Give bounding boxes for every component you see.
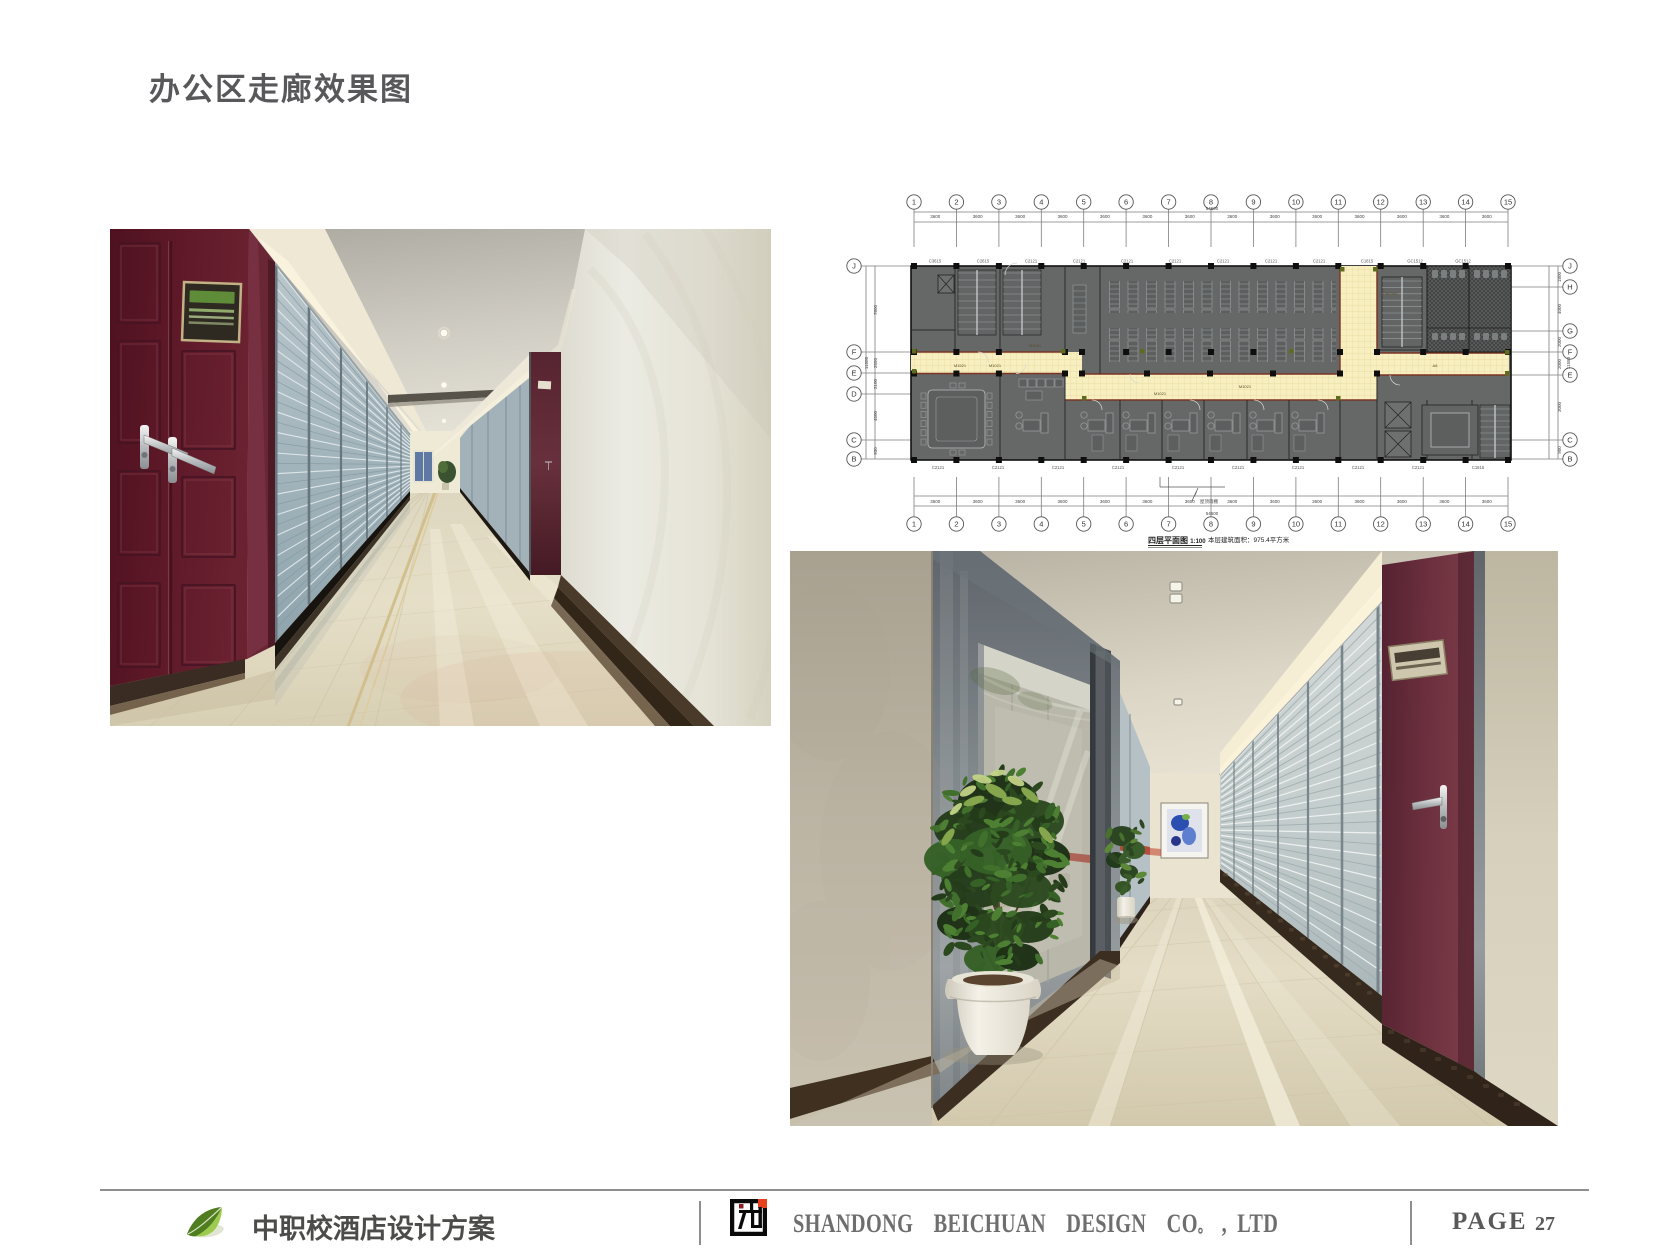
svg-text:14: 14 <box>1461 198 1469 207</box>
svg-text:C: C <box>851 436 857 445</box>
svg-text:3600: 3600 <box>1227 499 1238 504</box>
svg-text:15: 15 <box>1504 520 1512 529</box>
svg-text:900: 900 <box>1557 446 1562 454</box>
svg-text:2000: 2000 <box>1557 358 1562 369</box>
svg-text:B: B <box>851 455 856 464</box>
svg-text:M1021: M1021 <box>989 363 1002 368</box>
svg-text:C2121: C2121 <box>932 465 945 470</box>
svg-text:1: 1 <box>912 198 916 207</box>
svg-text:C2121: C2121 <box>1217 259 1230 264</box>
svg-text:1: 1 <box>912 520 916 529</box>
svg-text:C2121: C2121 <box>1169 259 1182 264</box>
svg-text:C2121: C2121 <box>1172 465 1185 470</box>
svg-text:4: 4 <box>1039 520 1043 529</box>
svg-text:11: 11 <box>1334 520 1342 529</box>
svg-text:3600: 3600 <box>1439 499 1450 504</box>
svg-text:11580: 11580 <box>1566 356 1571 369</box>
svg-text:3600: 3600 <box>1397 499 1408 504</box>
svg-text:15: 15 <box>1504 198 1512 207</box>
svg-text:9: 9 <box>1251 198 1255 207</box>
svg-text:6: 6 <box>1124 520 1128 529</box>
svg-text:J: J <box>1568 262 1572 271</box>
svg-text:11: 11 <box>1334 198 1342 207</box>
svg-text:13: 13 <box>1419 520 1427 529</box>
svg-text:1800: 1800 <box>1557 271 1562 282</box>
svg-text:11580: 11580 <box>864 356 869 369</box>
svg-text:E: E <box>851 369 856 378</box>
svg-text:3600: 3600 <box>1100 214 1111 219</box>
svg-text:3600: 3600 <box>1354 214 1365 219</box>
svg-text:12: 12 <box>1377 198 1385 207</box>
svg-text:3600: 3600 <box>1185 499 1196 504</box>
svg-text:M1021: M1021 <box>1029 343 1042 348</box>
svg-text:3600: 3600 <box>1354 499 1365 504</box>
svg-text:C2615: C2615 <box>977 259 990 264</box>
svg-text:3600: 3600 <box>973 214 984 219</box>
svg-text:3600: 3600 <box>1185 214 1196 219</box>
svg-text:C2121: C2121 <box>1265 259 1278 264</box>
svg-text:GC1512: GC1512 <box>1407 259 1423 264</box>
svg-text:7: 7 <box>1167 198 1171 207</box>
svg-text:2: 2 <box>954 198 958 207</box>
svg-text:C2121: C2121 <box>1352 465 1365 470</box>
svg-text:3600: 3600 <box>1057 214 1068 219</box>
svg-text:3600: 3600 <box>1482 214 1493 219</box>
svg-text:3600: 3600 <box>1227 214 1238 219</box>
svg-text:M1521: M1521 <box>954 363 967 368</box>
svg-text:3600: 3600 <box>1057 499 1068 504</box>
svg-text:54600: 54600 <box>1206 511 1219 516</box>
svg-text:M1021: M1021 <box>1154 391 1167 396</box>
svg-text:8: 8 <box>1209 520 1213 529</box>
svg-text:A6: A6 <box>1433 363 1439 368</box>
svg-text:2550: 2550 <box>873 357 878 368</box>
svg-text:TM2040: TM2040 <box>1383 291 1398 296</box>
svg-text:C: C <box>1567 436 1573 445</box>
svg-text:B: B <box>1567 455 1572 464</box>
svg-text:四层平面图 1:100: 四层平面图 1:100 <box>1148 536 1206 545</box>
svg-text:G: G <box>1567 327 1573 336</box>
svg-text:12: 12 <box>1377 520 1385 529</box>
svg-text:C2121: C2121 <box>1412 465 1425 470</box>
svg-text:C2121: C2121 <box>1073 259 1086 264</box>
svg-text:M1021: M1021 <box>1239 384 1252 389</box>
svg-text:3600: 3600 <box>930 499 941 504</box>
svg-text:7: 7 <box>1167 520 1171 529</box>
svg-text:J: J <box>852 262 856 271</box>
svg-text:E: E <box>1567 371 1572 380</box>
svg-text:14: 14 <box>1461 520 1469 529</box>
svg-text:C3615: C3615 <box>929 259 942 264</box>
svg-text:3600: 3600 <box>1142 214 1153 219</box>
svg-text:3600: 3600 <box>1270 499 1281 504</box>
svg-text:屋顶雨棚: 屋顶雨棚 <box>1200 498 1218 505</box>
svg-text:4500: 4500 <box>873 410 878 421</box>
svg-text:10: 10 <box>1292 198 1300 207</box>
svg-text:C1815: C1815 <box>1472 465 1485 470</box>
svg-text:3: 3 <box>997 198 1001 207</box>
svg-text:3600: 3600 <box>1312 499 1323 504</box>
svg-text:C2121: C2121 <box>1025 259 1038 264</box>
svg-text:F: F <box>1568 348 1573 357</box>
svg-text:7800: 7800 <box>873 304 878 315</box>
svg-text:C2121: C2121 <box>1052 465 1065 470</box>
svg-text:GC1512: GC1512 <box>1455 259 1471 264</box>
svg-text:2000: 2000 <box>1557 336 1562 347</box>
svg-text:13: 13 <box>1419 198 1427 207</box>
svg-text:4: 4 <box>1039 198 1043 207</box>
svg-text:C2121: C2121 <box>1121 259 1134 264</box>
svg-text:D: D <box>851 390 857 399</box>
svg-text:9: 9 <box>1251 520 1255 529</box>
svg-text:5: 5 <box>1082 198 1086 207</box>
svg-text:5: 5 <box>1082 520 1086 529</box>
svg-text:C1815: C1815 <box>1361 259 1374 264</box>
svg-text:10: 10 <box>1292 520 1300 529</box>
svg-text:C2121: C2121 <box>992 465 1005 470</box>
svg-text:3600: 3600 <box>1482 499 1493 504</box>
svg-text:C2121: C2121 <box>1313 259 1326 264</box>
svg-text:C2121: C2121 <box>1292 465 1305 470</box>
svg-text:本层建筑面积：975.4平方米: 本层建筑面积：975.4平方米 <box>1208 535 1290 544</box>
svg-text:930: 930 <box>873 447 878 455</box>
svg-text:3000: 3000 <box>1557 401 1562 412</box>
svg-text:3600: 3600 <box>1015 214 1026 219</box>
svg-text:3600: 3600 <box>1015 499 1026 504</box>
svg-text:C2121: C2121 <box>1232 465 1245 470</box>
svg-text:54600: 54600 <box>1206 206 1219 211</box>
svg-text:3600: 3600 <box>1270 214 1281 219</box>
svg-text:3600: 3600 <box>1439 214 1450 219</box>
svg-text:H: H <box>1567 283 1572 292</box>
svg-text:3600: 3600 <box>930 214 941 219</box>
svg-text:6: 6 <box>1124 198 1128 207</box>
svg-text:F: F <box>852 348 857 357</box>
svg-text:3600: 3600 <box>973 499 984 504</box>
svg-text:3600: 3600 <box>1100 499 1111 504</box>
svg-text:3600: 3600 <box>1142 499 1153 504</box>
svg-text:3600: 3600 <box>1397 214 1408 219</box>
svg-text:3: 3 <box>997 520 1001 529</box>
svg-text:4000: 4000 <box>1557 303 1562 314</box>
svg-text:2100: 2100 <box>873 378 878 389</box>
svg-text:2: 2 <box>954 520 958 529</box>
svg-text:C2121: C2121 <box>1112 465 1125 470</box>
svg-text:3600: 3600 <box>1312 214 1323 219</box>
